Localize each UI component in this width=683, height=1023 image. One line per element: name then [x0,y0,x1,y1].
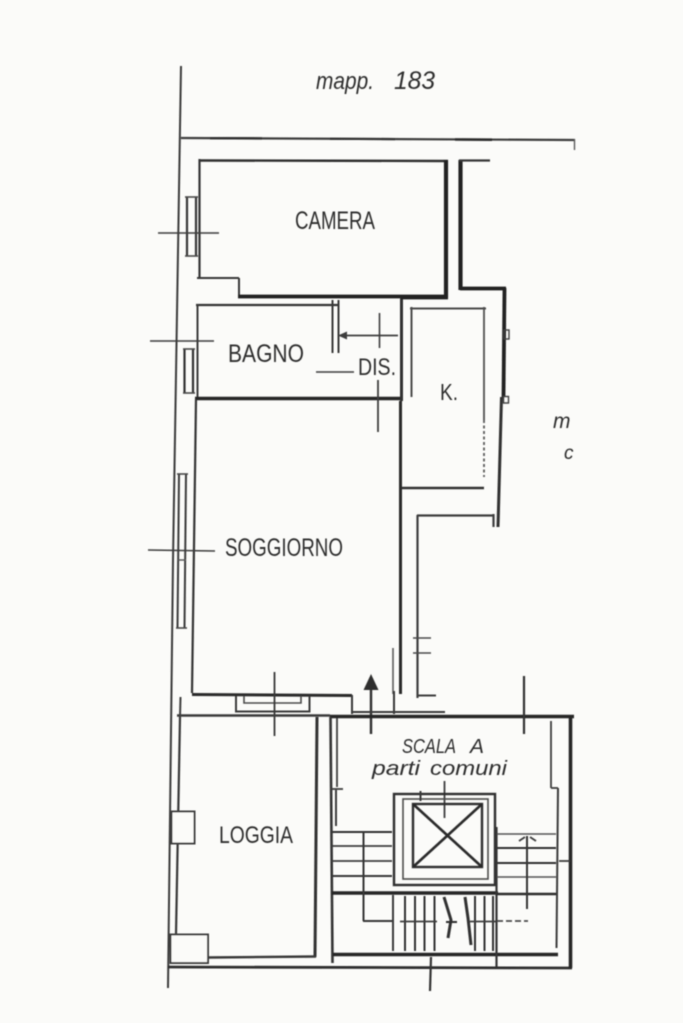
svg-text:DIS.: DIS. [358,354,396,381]
svg-text:c: c [564,443,574,464]
svg-text:K.: K. [440,379,458,405]
svg-text:comuni: comuni [430,758,508,780]
svg-text:CAMERA: CAMERA [295,207,375,235]
svg-text:mapp.: mapp. [316,68,374,95]
svg-text:A: A [469,736,484,758]
svg-text:LOGGIA: LOGGIA [219,822,293,849]
svg-text:SCALA: SCALA [402,736,456,758]
svg-text:183: 183 [394,67,435,95]
svg-text:parti: parti [371,758,421,780]
svg-text:m: m [553,410,571,433]
svg-text:SOGGIORNO: SOGGIORNO [225,534,343,562]
svg-text:BAGNO: BAGNO [228,340,304,368]
